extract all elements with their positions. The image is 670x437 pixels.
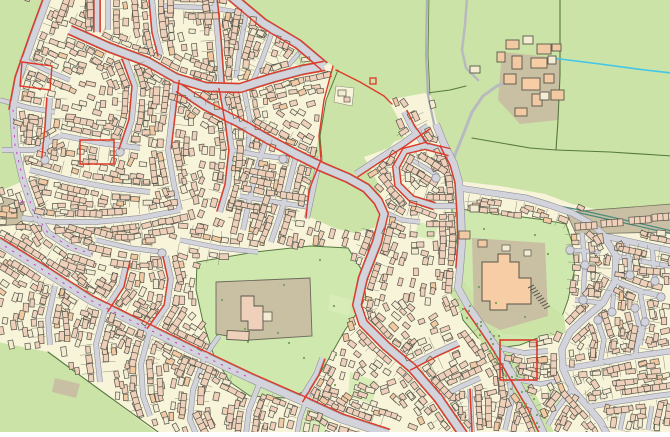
svg-text:x: x	[20, 199, 24, 206]
